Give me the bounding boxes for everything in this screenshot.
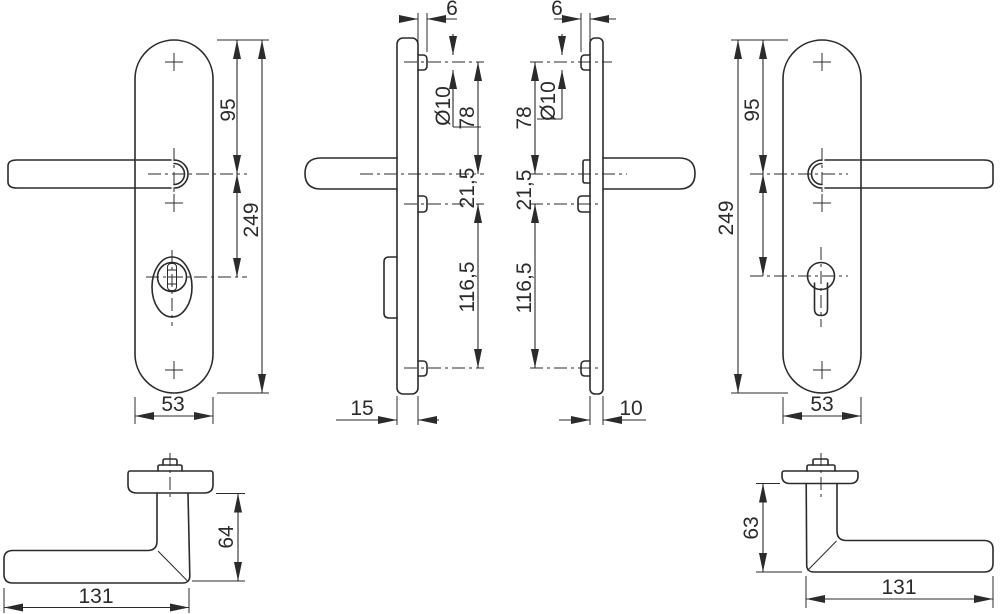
rose-cap (782, 471, 858, 484)
miter-joint-line (808, 541, 837, 571)
extension-lines (537, 13, 603, 425)
screw-mark (813, 53, 831, 71)
backplate-outline (783, 40, 861, 393)
dim-116-5-label: 116,5 (456, 262, 479, 313)
lever-body (4, 493, 190, 583)
lever-profile (603, 158, 695, 189)
dim-63-label: 63 (740, 516, 763, 539)
extension-lines (397, 13, 481, 425)
miter-joint-line (158, 551, 188, 581)
lever-profile-exterior: 64 131 (4, 453, 245, 613)
dim-6-label: 6 (446, 0, 458, 20)
screw-mark (165, 361, 183, 379)
dim-78-label: 78 (456, 106, 479, 129)
dim-10-label: 10 (619, 397, 642, 420)
extension-lines (4, 494, 245, 614)
spindle-hub (583, 160, 590, 183)
dim-21-5-label: 21,5 (456, 168, 479, 209)
extension-lines (731, 40, 861, 424)
lever-profile (305, 158, 397, 189)
centerlines (146, 148, 247, 326)
dim-116-5-label: 116,5 (513, 263, 536, 314)
backplate-outline (135, 40, 213, 393)
dim-21-5-label: 21,5 (513, 170, 536, 211)
dim-15-label: 15 (350, 397, 373, 420)
lever-handle (8, 160, 171, 188)
dim-53-label: 53 (810, 393, 833, 416)
dim-95-label: 95 (217, 98, 240, 121)
dim-95-label: 95 (741, 98, 764, 121)
dim-249-label: 249 (715, 200, 738, 235)
lever-handle (825, 160, 993, 188)
dim-6-label: 6 (551, 0, 563, 20)
side-view-interior: 6 Ø10 78 21,5 116,5 10 (513, 0, 695, 425)
dim-249-label: 249 (240, 202, 263, 237)
dim-d10-label: Ø10 (537, 81, 560, 121)
cylinder-cover (384, 257, 397, 318)
front-view-exterior: 95 249 53 (8, 40, 269, 424)
side-view-exterior: 6 Ø10 78 21,5 116,5 15 (305, 0, 484, 425)
backplate-profile (590, 38, 603, 394)
door-handle-drawing: 95 249 53 6 Ø10 78 21,5 116,5 15 (0, 0, 1000, 614)
front-view-interior: 95 249 53 (715, 40, 993, 424)
lever-profile-interior: 63 131 (740, 453, 993, 608)
technical-drawing-sheet: 95 249 53 6 Ø10 78 21,5 116,5 15 (0, 0, 1000, 614)
dim-78-label: 78 (513, 106, 536, 129)
screw-mark (165, 53, 183, 71)
extension-lines (756, 484, 993, 609)
lever-body (806, 484, 993, 573)
backplate-profile (397, 38, 418, 394)
dim-131-label: 131 (881, 576, 916, 599)
screw-mark (813, 361, 831, 379)
dim-131-label: 131 (78, 585, 113, 608)
centerlines (750, 148, 848, 327)
dim-64-label: 64 (215, 525, 238, 549)
dim-53-label: 53 (161, 393, 184, 416)
dim-d10-label: Ø10 (432, 86, 455, 126)
